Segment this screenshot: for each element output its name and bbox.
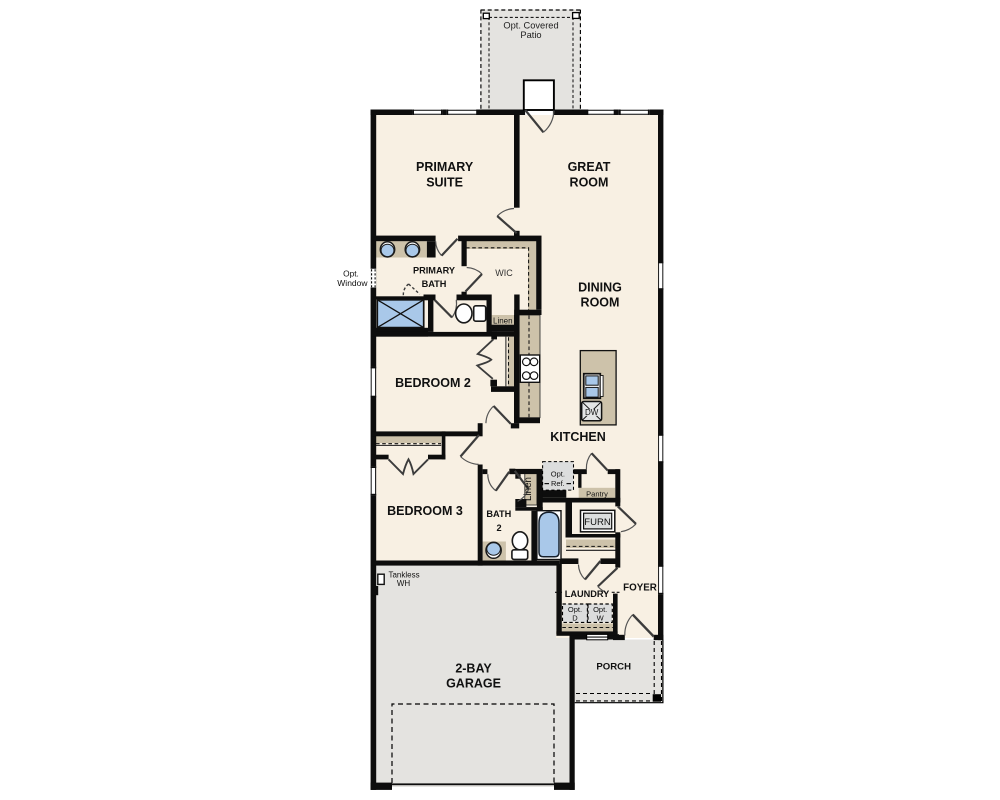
- svg-text:SUITE: SUITE: [426, 175, 463, 189]
- svg-text:FOYER: FOYER: [623, 583, 657, 594]
- svg-text:PORCH: PORCH: [596, 661, 631, 672]
- svg-text:FURN: FURN: [584, 517, 611, 528]
- svg-text:Ref.: Ref.: [551, 479, 565, 488]
- svg-text:GARAGE: GARAGE: [446, 676, 501, 690]
- svg-text:BEDROOM 2: BEDROOM 2: [395, 376, 471, 390]
- svg-text:2-BAY: 2-BAY: [455, 662, 492, 676]
- svg-text:WH: WH: [397, 579, 411, 588]
- svg-text:DINING: DINING: [578, 281, 622, 295]
- svg-text:PRIMARY: PRIMARY: [413, 266, 455, 276]
- svg-text:Linen: Linen: [523, 477, 534, 501]
- svg-text:Window: Window: [337, 278, 368, 288]
- svg-text:ROOM: ROOM: [570, 175, 609, 189]
- svg-text:BATH: BATH: [486, 509, 511, 519]
- svg-text:Patio: Patio: [520, 30, 541, 40]
- svg-text:W: W: [597, 614, 605, 623]
- svg-text:Linen: Linen: [493, 316, 513, 325]
- svg-text:DW: DW: [585, 408, 599, 417]
- svg-text:LAUNDRY: LAUNDRY: [565, 589, 610, 599]
- svg-text:BATH: BATH: [422, 279, 447, 289]
- svg-text:WIC: WIC: [495, 268, 513, 278]
- svg-text:Pantry: Pantry: [586, 490, 608, 499]
- svg-text:2: 2: [496, 523, 501, 533]
- svg-text:Opt. Covered: Opt. Covered: [503, 20, 558, 30]
- svg-text:GREAT: GREAT: [568, 160, 611, 174]
- svg-text:PRIMARY: PRIMARY: [416, 160, 474, 174]
- svg-text:KITCHEN: KITCHEN: [550, 430, 606, 444]
- svg-text:Opt.: Opt.: [551, 470, 565, 479]
- svg-text:ROOM: ROOM: [581, 295, 620, 309]
- svg-text:D: D: [572, 614, 578, 623]
- svg-text:BEDROOM 3: BEDROOM 3: [387, 504, 463, 518]
